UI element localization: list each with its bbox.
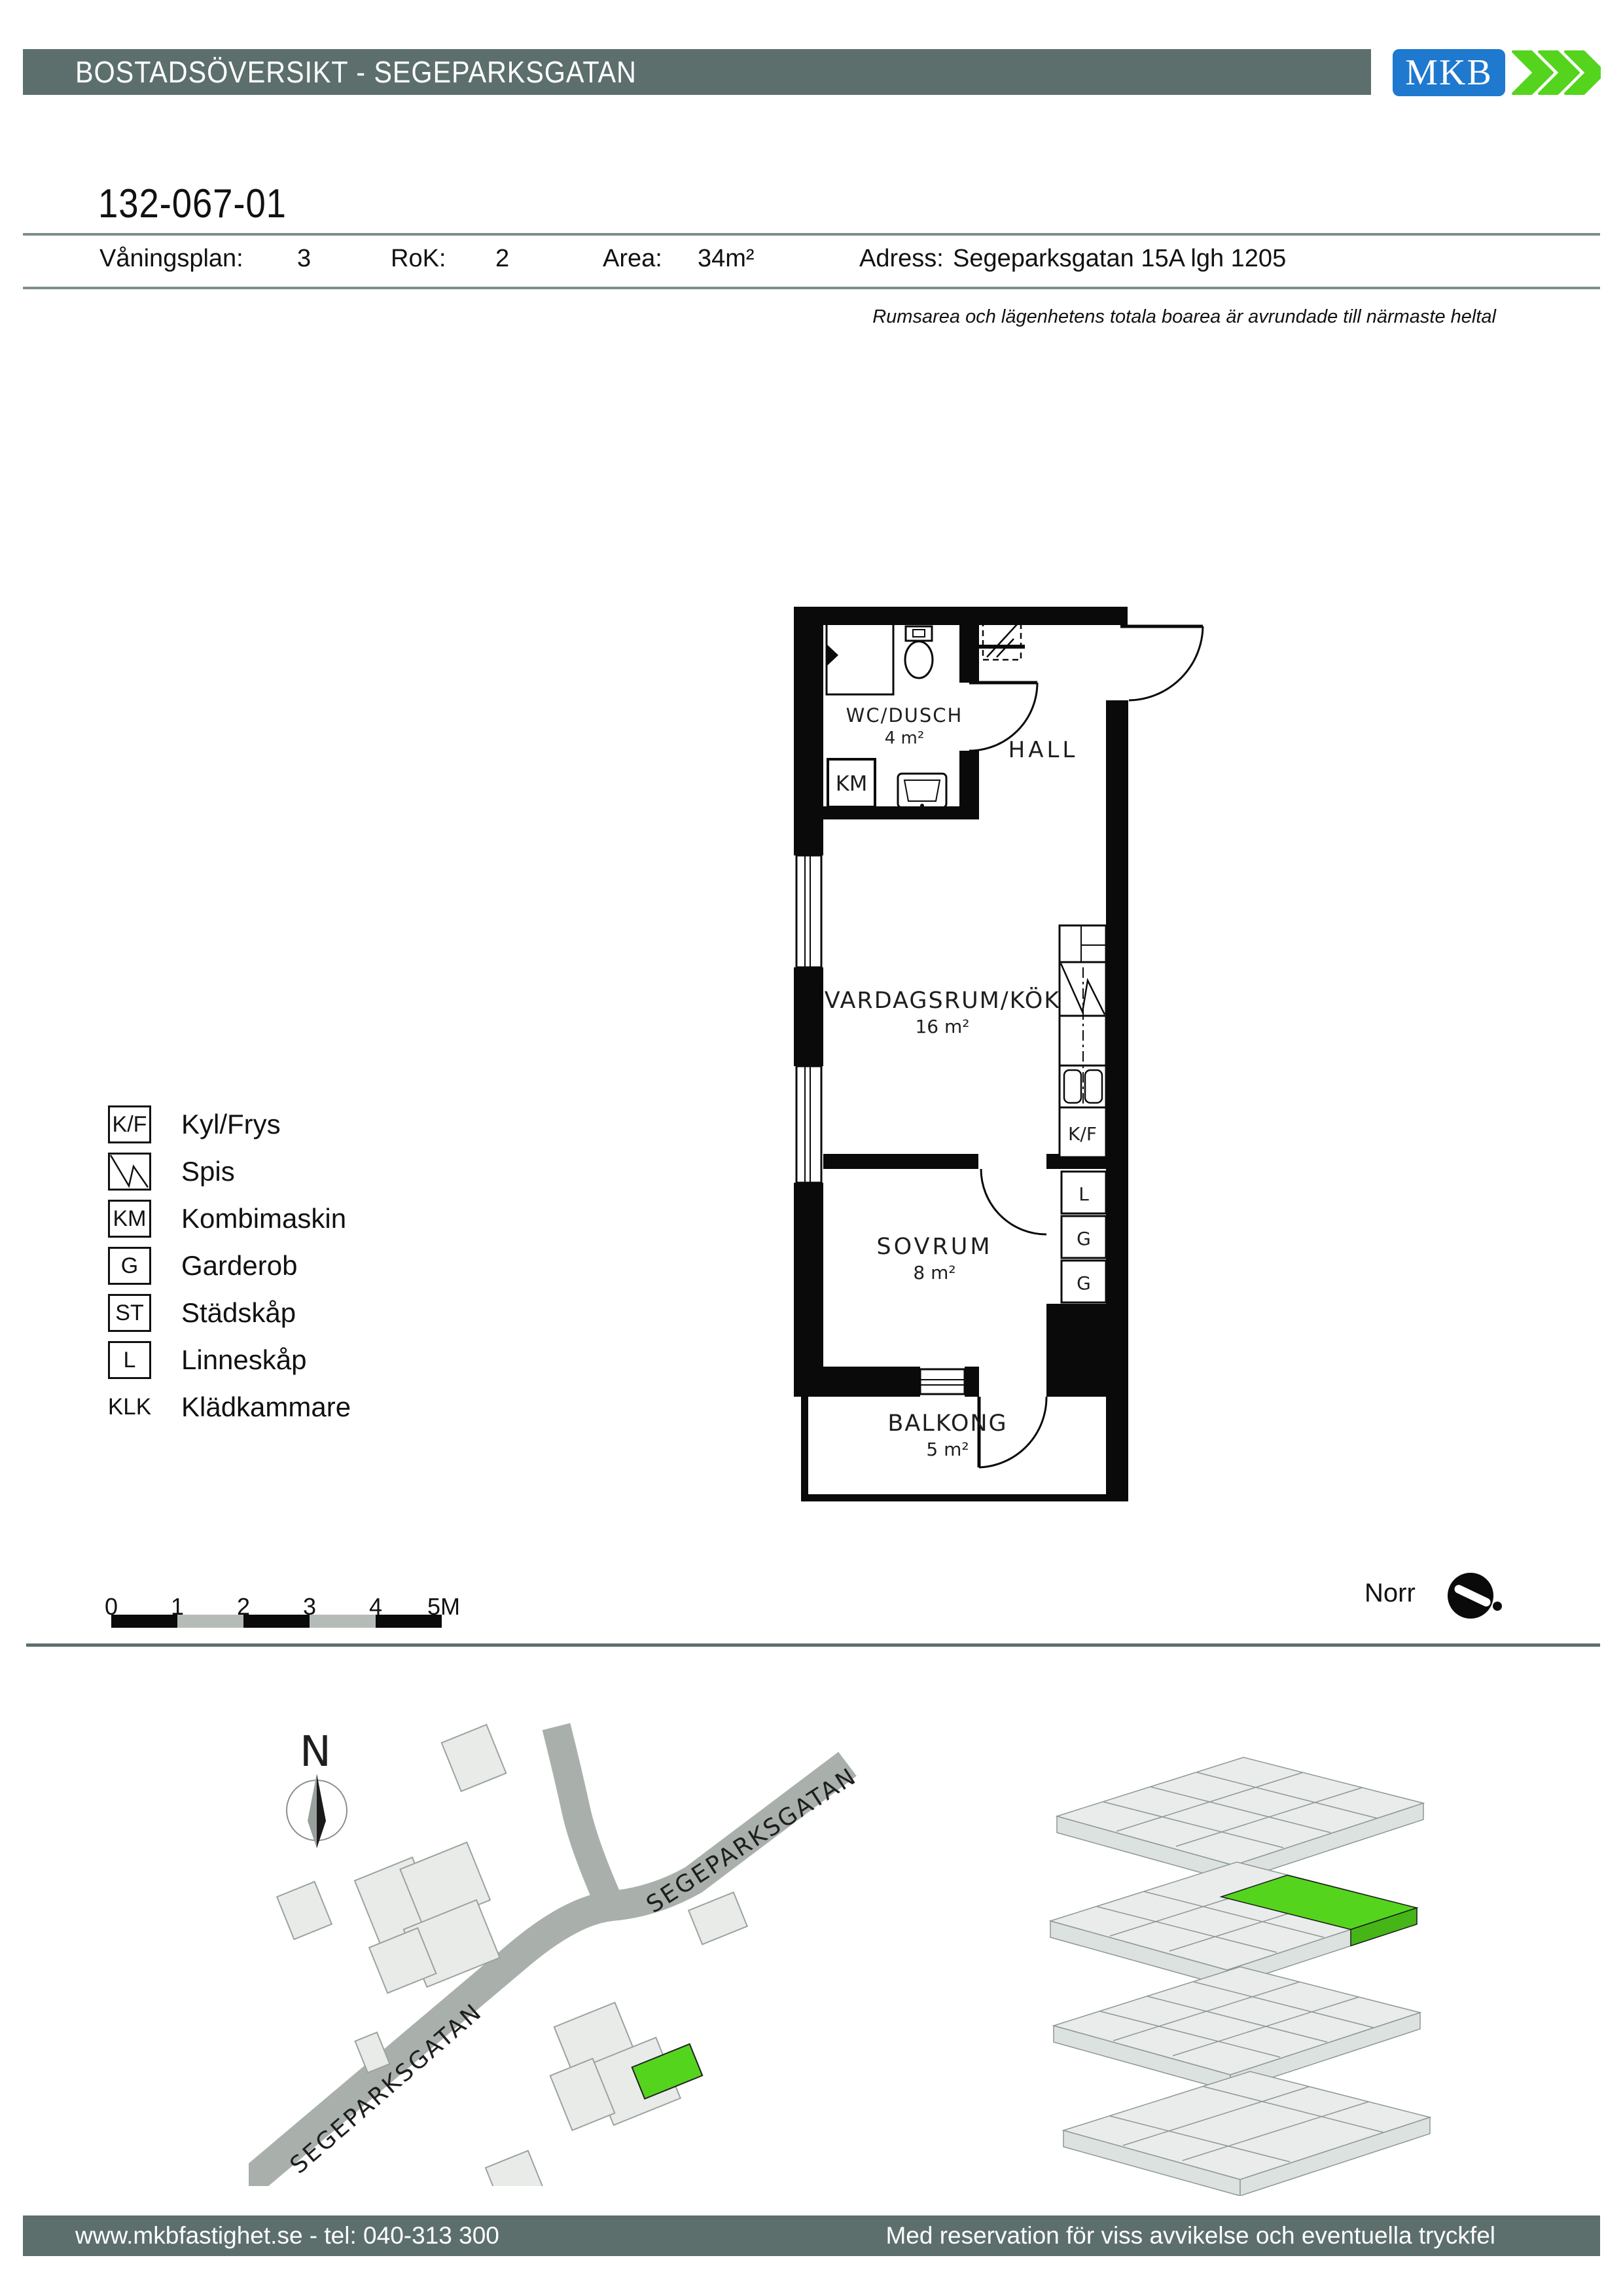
legend-item-garderob: G Garderob <box>108 1242 351 1289</box>
fridge-label: K/F <box>1068 1123 1097 1145</box>
legend-item-kombimaskin: KM Kombimaskin <box>108 1195 351 1242</box>
footer-contact: www.mkbfastighet.se - tel: 040-313 300 <box>75 2215 499 2256</box>
info-label: Area: <box>603 245 662 273</box>
map-north-arrow: N <box>287 1728 347 1848</box>
info-value: 34m² <box>698 245 755 273</box>
north-label: Norr <box>1364 1579 1416 1608</box>
washbasin-icon <box>898 774 946 808</box>
scale-bar <box>111 1615 442 1628</box>
legend-item-kylfrys: K/F Kyl/Frys <box>108 1101 351 1148</box>
legend-item-stadskap: ST Städskåp <box>108 1289 351 1336</box>
g-symbol: G <box>108 1247 151 1285</box>
footer-disclaimer: Med reservation för viss avvikelse och e… <box>885 2215 1495 2256</box>
divider <box>23 287 1600 289</box>
floor-slab-highlighted <box>1050 1862 1417 1986</box>
room-label-living: VARDAGSRUM/KÖK <box>825 986 1060 1014</box>
shower-icon <box>827 624 893 694</box>
klk-symbol: KLK <box>108 1388 151 1426</box>
street-label-upper: SEGEPARKSGATAN <box>642 1763 862 1918</box>
info-value: Segeparksgatan 15A lgh 1205 <box>953 245 1286 273</box>
washing-machine: KM <box>828 759 875 807</box>
info-label: Adress: <box>859 245 944 273</box>
mkb-logo-box: MKB <box>1393 49 1505 96</box>
floor-plan: KM K/F L G G <box>785 592 1221 1509</box>
info-row: Våningsplan: 3 RoK: 2 Area: 34m² Adress:… <box>0 245 1623 275</box>
mkb-chevrons-icon <box>1510 49 1601 96</box>
street-label-lower: SEGEPARKSGATAN <box>285 1998 488 2179</box>
room-area-wc: 4 m² <box>885 728 925 748</box>
shaft-symbol <box>971 622 1025 660</box>
apartment-id: 132-067-01 <box>98 181 287 227</box>
room-label-balcony: BALKONG <box>887 1410 1007 1437</box>
legend-item-spis: Spis <box>108 1148 351 1195</box>
floor-stack-3d <box>1034 1738 1479 2196</box>
info-label: RoK: <box>391 245 446 273</box>
mkb-logo-text: MKB <box>1405 52 1493 94</box>
spis-icon <box>108 1153 151 1191</box>
page-title: BOSTADSÖVERSIKT - SEGEPARKSGATAN <box>75 49 637 95</box>
kf-symbol: K/F <box>108 1105 151 1143</box>
room-label-wc: WC/DUSCH <box>846 704 963 726</box>
svg-text:N: N <box>300 1728 331 1776</box>
info-value: 3 <box>297 245 311 273</box>
toilet-icon <box>905 626 933 678</box>
legend-item-linneskap: L Linneskåp <box>108 1336 351 1384</box>
room-area-balcony: 5 m² <box>926 1439 969 1460</box>
document-page: BOSTADSÖVERSIKT - SEGEPARKSGATAN MKB 132… <box>0 0 1623 2296</box>
room-area-living: 16 m² <box>915 1016 969 1037</box>
km-symbol: KM <box>108 1200 151 1238</box>
room-label-bedroom: SOVRUM <box>876 1234 992 1260</box>
room-area-bedroom: 8 m² <box>913 1262 955 1283</box>
closet-label: L <box>1079 1183 1089 1205</box>
legend-item-kladkammare: KLK Klädkammare <box>108 1384 351 1431</box>
info-label: Våningsplan: <box>99 245 243 273</box>
north-compass-icon <box>1442 1568 1507 1623</box>
closet-label: G <box>1077 1272 1091 1294</box>
st-symbol: ST <box>108 1294 151 1332</box>
rounding-note: Rumsarea och lägenhetens totala boarea ä… <box>872 306 1496 328</box>
floor-slab <box>1054 1967 1420 2091</box>
header-bar: BOSTADSÖVERSIKT - SEGEPARKSGATAN <box>23 49 1371 95</box>
footer-bar: www.mkbfastighet.se - tel: 040-313 300 M… <box>23 2215 1600 2256</box>
divider <box>26 1643 1600 1647</box>
svg-text:KM: KM <box>836 771 868 796</box>
divider <box>23 233 1600 236</box>
l-symbol: L <box>108 1341 151 1379</box>
floor-slab <box>1063 2072 1430 2196</box>
mkb-logo: MKB <box>1393 49 1601 96</box>
closet-label: G <box>1077 1228 1091 1249</box>
site-map: N SEGEPARKSGATAN SEGEPARKSGATAN <box>249 1689 870 2186</box>
kitchen-counter <box>1060 925 1106 1157</box>
info-value: 2 <box>495 245 509 273</box>
legend: K/F Kyl/Frys Spis KM Kombimaskin G Garde… <box>108 1101 351 1431</box>
room-label-hall: HALL <box>1008 737 1079 763</box>
